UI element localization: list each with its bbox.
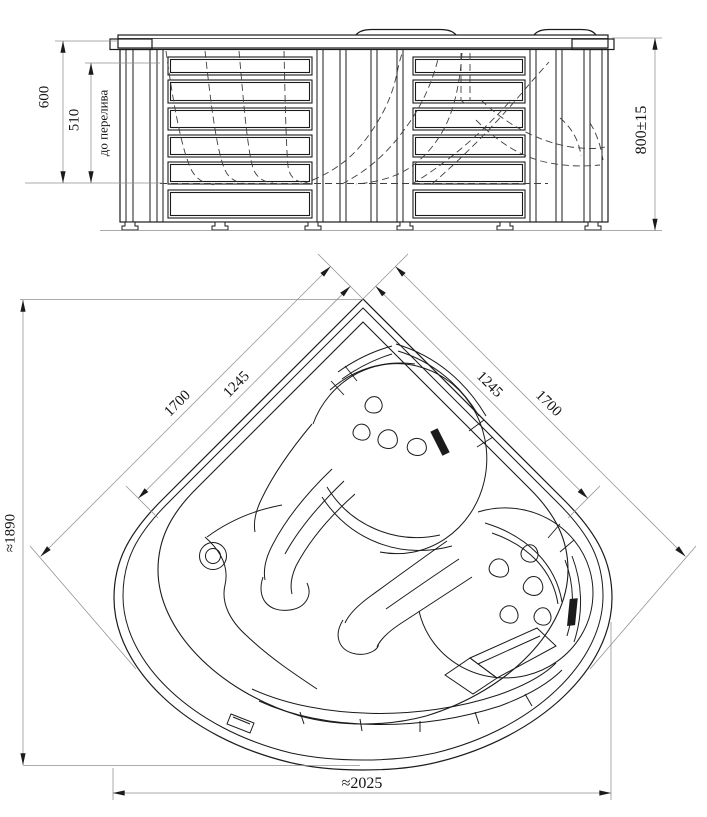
dim-line-1700-left (41, 267, 331, 557)
seat-right (338, 508, 593, 678)
jet-holes-right (489, 545, 551, 625)
headrest-bump (534, 30, 596, 36)
dim-line-1700-right (396, 267, 686, 557)
tub-rim (110, 30, 614, 50)
headrest-right (565, 556, 581, 642)
seat-upper (254, 344, 493, 610)
slat-panel-right (413, 57, 525, 218)
jet-fitting (200, 543, 227, 570)
jet-holes-upper (353, 397, 426, 456)
overflow-fitting (227, 714, 254, 733)
dim-line-1245-left (138, 286, 350, 498)
dim-line-1245-right (376, 286, 588, 498)
drawing-canvas: 600 510 до перелива 800±15 1700 1245 124… (0, 0, 707, 817)
plan-view (20, 254, 696, 800)
brand-plate (431, 429, 449, 455)
slat-panel-left (168, 57, 312, 218)
rim-ribs-upper (331, 366, 493, 447)
steps (252, 628, 562, 732)
plan-dimensions (20, 254, 696, 800)
rim-ribs-right (548, 524, 574, 552)
bowl-interior (200, 344, 593, 733)
dim-label-depth-total: 600 (38, 86, 53, 109)
headrest-bump (356, 30, 456, 36)
front-view (25, 30, 662, 231)
dim-label-1890: ≈1890 (4, 514, 19, 552)
dim-label-2025: ≈2025 (342, 776, 383, 792)
brand-plate (568, 599, 578, 626)
dim-label-depth-overflow: 510 (68, 109, 83, 132)
dim-label-overflow-note: до перелива (97, 90, 110, 157)
dim-label-height: 800±15 (634, 106, 650, 155)
adjustable-feet (122, 222, 601, 230)
